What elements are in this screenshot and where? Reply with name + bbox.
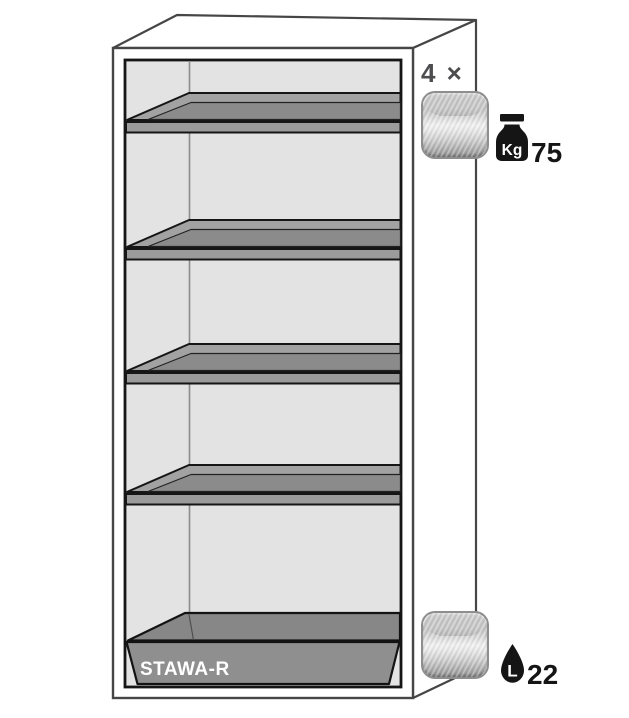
weight-capacity-icon: Kg xyxy=(495,114,529,161)
tray-thumbnail-icon xyxy=(421,611,489,679)
liquid-volume-icon: L xyxy=(500,643,525,684)
sump-label: STAWA-R xyxy=(140,659,230,680)
weight-unit-label: Kg xyxy=(502,142,523,159)
volume-unit-label: L xyxy=(507,662,517,681)
sump-tray: STAWA-R xyxy=(127,613,401,684)
product-diagram: STAWA-R 4 × Kg 75 L 22 xyxy=(0,0,629,718)
shelf-load-value: 75 xyxy=(531,139,562,167)
cabinet-illustration: STAWA-R xyxy=(0,0,629,718)
shelf-count-label: 4 × xyxy=(421,60,464,86)
sump-volume-value: 22 xyxy=(527,661,558,689)
shelf-thumbnail-icon xyxy=(421,91,489,159)
